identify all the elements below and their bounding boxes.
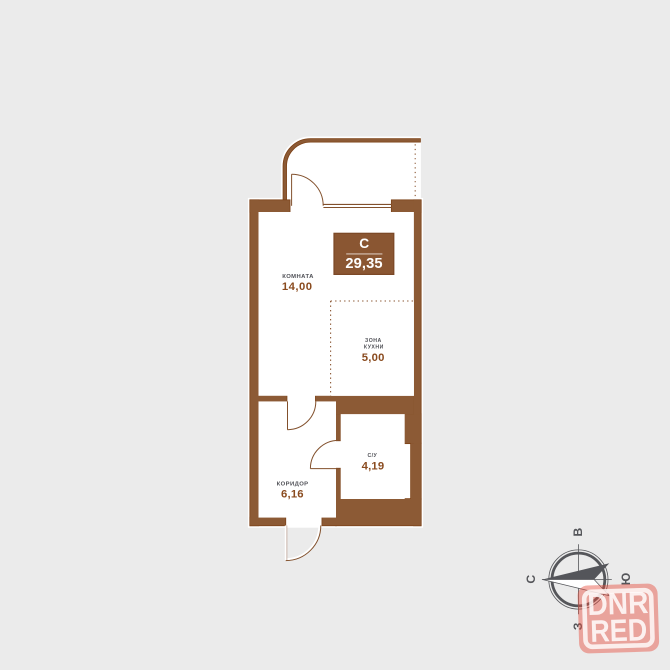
svg-text:29,35: 29,35 [345,256,382,272]
svg-text:5,00: 5,00 [362,352,385,364]
svg-text:Ю: Ю [619,572,633,585]
svg-text:4,19: 4,19 [362,461,385,473]
svg-text:С/У: С/У [367,453,377,459]
svg-text:КОМНАТА: КОМНАТА [282,274,314,280]
svg-text:6,16: 6,16 [281,489,304,501]
svg-text:С: С [524,575,538,584]
svg-text:ЗОНА: ЗОНА [365,338,382,344]
svg-text:14,00: 14,00 [282,281,313,293]
svg-text:КОРИДОР: КОРИДОР [277,482,309,488]
svg-text:С: С [359,236,369,251]
svg-text:RED: RED [590,612,648,649]
svg-text:КУХНИ: КУХНИ [364,345,384,351]
svg-text:В: В [571,528,585,537]
